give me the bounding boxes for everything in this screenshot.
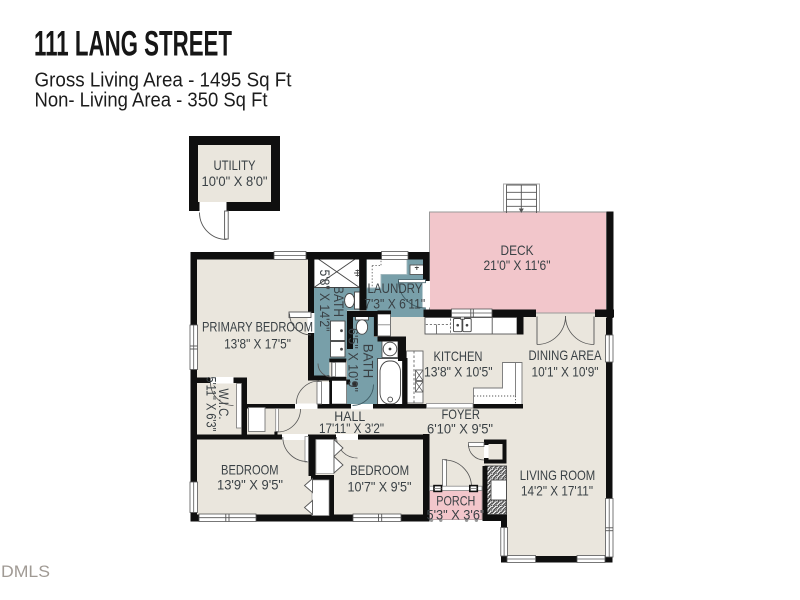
svg-text:13'8" X 17'5": 13'8" X 17'5": [224, 336, 291, 352]
svg-text:5'3" X 3'6": 5'3" X 3'6": [427, 507, 485, 523]
svg-text:6'10" X 9'5": 6'10" X 9'5": [427, 421, 493, 437]
svg-text:13'9" X 9'5": 13'9" X 9'5": [217, 477, 283, 493]
svg-text:21'0" X 11'6": 21'0" X 11'6": [484, 257, 551, 273]
svg-text:UTILITY: UTILITY: [214, 157, 257, 173]
svg-text:DECK: DECK: [501, 242, 535, 258]
svg-text:10'1" X 10'9": 10'1" X 10'9": [532, 364, 599, 380]
svg-text:7'3" X 6'11": 7'3" X 6'11": [364, 296, 425, 312]
svg-text:DINING AREA: DINING AREA: [529, 347, 603, 363]
svg-text:5'8" X 14'2": 5'8" X 14'2": [317, 270, 333, 332]
svg-text:PRIMARY BEDROOM: PRIMARY BEDROOM: [202, 319, 313, 335]
svg-text:13'8" X 10'5": 13'8" X 10'5": [424, 364, 493, 380]
svg-text:5'11" X 6'3": 5'11" X 6'3": [204, 377, 220, 432]
svg-text:BEDROOM: BEDROOM: [350, 462, 409, 478]
svg-text:6'5" X 10'9": 6'5" X 10'9": [346, 328, 362, 392]
svg-text:DMLS: DMLS: [1, 562, 50, 581]
svg-text:17'11" X 3'2": 17'11" X 3'2": [319, 420, 384, 436]
svg-text:14'2" X 17'11": 14'2" X 17'11": [521, 483, 593, 499]
svg-text:10'0" X 8'0": 10'0" X 8'0": [202, 173, 268, 189]
svg-text:LAUNDRY: LAUNDRY: [368, 280, 424, 296]
svg-text:111 LANG STREET: 111 LANG STREET: [34, 24, 232, 64]
svg-text:LIVING ROOM: LIVING ROOM: [520, 467, 596, 483]
svg-text:BEDROOM: BEDROOM: [221, 462, 279, 478]
svg-text:Non- Living Area - 350 Sq Ft: Non- Living Area - 350 Sq Ft: [35, 90, 268, 112]
svg-text:BATH: BATH: [361, 344, 377, 379]
svg-text:KITCHEN: KITCHEN: [434, 348, 483, 364]
svg-text:Gross Living Area - 1495 Sq Ft: Gross Living Area - 1495 Sq Ft: [35, 70, 292, 92]
svg-text:10'7" X 9'5": 10'7" X 9'5": [348, 479, 412, 495]
